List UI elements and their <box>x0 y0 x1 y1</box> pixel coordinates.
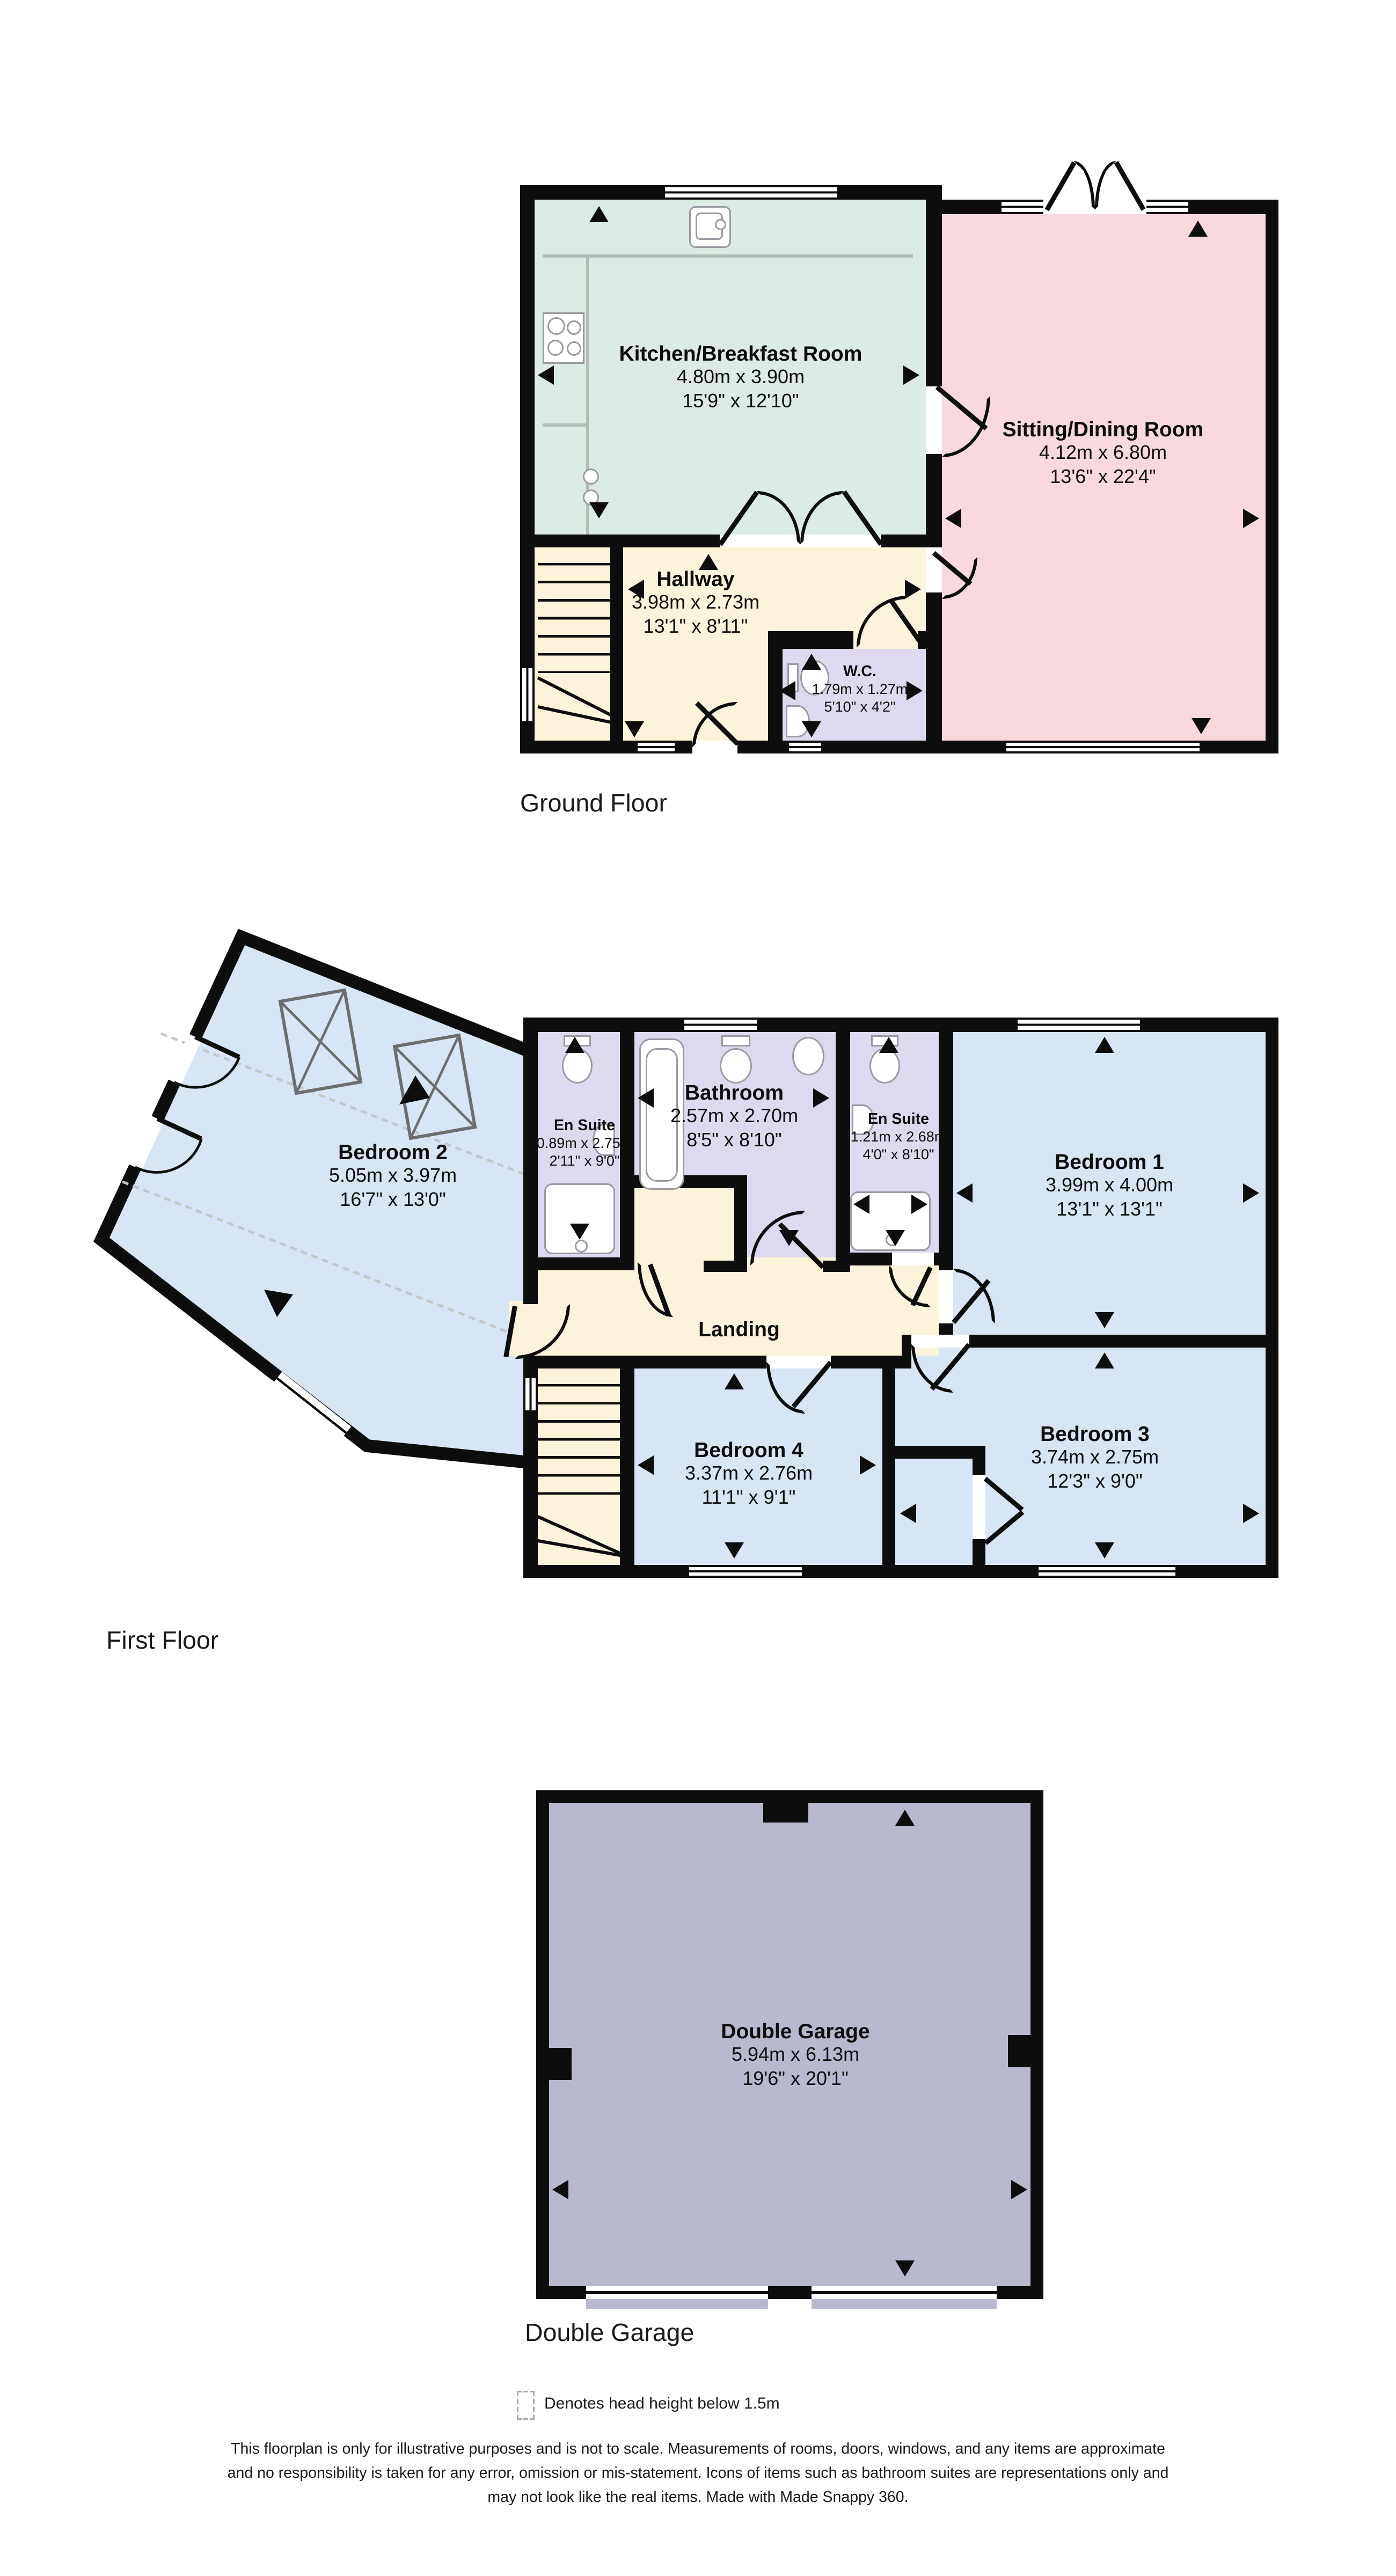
toilet-icon <box>869 1048 900 1084</box>
toilet-icon <box>562 1048 593 1084</box>
wc-imperial: 5'10" x 4'2" <box>799 699 921 716</box>
window <box>1018 1018 1140 1032</box>
bedroom3-metric: 3.74m x 2.75m <box>966 1446 1224 1470</box>
bathroom-imperial: 8'5" x 8'10" <box>622 1129 847 1153</box>
room-label-ensuite2: En Suite 1.21m x 2.68m 4'0" x 8'10" <box>839 1111 958 1164</box>
window <box>638 741 675 753</box>
hob-burner-icon <box>567 320 581 335</box>
measure-arrow-up <box>895 1810 915 1826</box>
wall <box>704 1261 747 1272</box>
window <box>523 1378 538 1410</box>
kitchen-knob-icon <box>583 469 599 485</box>
room-label-bedroom3: Bedroom 3 3.74m x 2.75m 12'3" x 9'0" <box>966 1422 1224 1494</box>
room-label-garage: Double Garage 5.94m x 6.13m 19'6" x 20'1… <box>667 2019 924 2091</box>
floorplan-canvas: Bedroom 2 5.05m x 3.97m 16'7" x 13'0" <box>0 0 1396 2576</box>
measure-arrow-up <box>879 1037 898 1053</box>
room-label-kitchen: Kitchen/Breakfast Room 4.80m x 3.90m 15'… <box>612 341 869 414</box>
room-label-bedroom1: Bedroom 1 3.99m x 4.00m 13'1" x 13'1" <box>981 1150 1238 1222</box>
wall <box>902 1335 911 1368</box>
bedroom3-imperial: 12'3" x 9'0" <box>966 1470 1224 1494</box>
door-opening <box>939 1270 953 1323</box>
staircase-treads <box>538 1368 620 1510</box>
garage-imperial: 19'6" x 20'1" <box>667 2067 924 2091</box>
garage-caption: Double Garage <box>525 2320 694 2349</box>
hob-burner-icon <box>547 317 565 335</box>
wall <box>926 592 942 741</box>
measure-arrow-right <box>1243 1504 1259 1523</box>
kitchen-metric: 4.80m x 3.90m <box>612 365 869 390</box>
wall <box>881 535 942 547</box>
hallway-name: Hallway <box>583 567 808 591</box>
window <box>1002 200 1043 214</box>
hob-burner-icon <box>547 340 564 356</box>
measure-arrow-left <box>945 509 961 528</box>
wall <box>523 1018 1278 1032</box>
bedroom2-name: Bedroom 2 <box>248 1140 538 1164</box>
measure-arrow-down <box>1095 1312 1114 1328</box>
bedroom3-name: Bedroom 3 <box>966 1422 1224 1446</box>
kitchen-cabinet-line <box>543 423 588 426</box>
measure-arrow-up <box>1188 221 1208 237</box>
measure-arrow-down <box>1095 1542 1114 1558</box>
shower-drain-icon <box>575 1240 588 1253</box>
measure-arrow-down <box>625 721 644 737</box>
bedroom2-metric: 5.05m x 3.97m <box>248 1164 538 1188</box>
disclaimer: This floorplan is only for illustrative … <box>0 2438 1396 2510</box>
measure-arrow-right <box>1243 1183 1259 1203</box>
window <box>1006 741 1200 753</box>
hob-burner-icon <box>567 341 581 356</box>
bedroom4-imperial: 11'1" x 9'1" <box>620 1486 878 1510</box>
window <box>1146 200 1188 214</box>
staircase-winders <box>538 1510 620 1565</box>
hallway-imperial: 13'1" x 8'11" <box>583 615 808 639</box>
measure-arrow-up <box>1095 1352 1114 1368</box>
measure-arrow-down <box>570 1224 589 1240</box>
garage-door-line <box>586 2291 768 2294</box>
bedroom2-imperial: 16'7" x 13'0" <box>248 1188 538 1212</box>
kitchen-imperial: 15'9" x 12'10" <box>612 390 869 414</box>
ensuite2-name: En Suite <box>839 1111 958 1129</box>
ensuite1-imperial: 2'11" x 9'0" <box>525 1153 644 1170</box>
measure-arrow-right <box>911 1195 927 1214</box>
measure-arrow-down <box>779 1230 799 1246</box>
sitting-metric: 4.12m x 6.80m <box>974 441 1232 465</box>
measure-arrow-down <box>725 1542 744 1558</box>
window <box>789 741 821 753</box>
measure-arrow-down <box>802 721 821 737</box>
disclaimer-line3: may not look like the real items. Made w… <box>0 2486 1396 2510</box>
ensuite2-imperial: 4'0" x 8'10" <box>839 1146 958 1164</box>
room-label-wc: W.C. 1.79m x 1.27m 5'10" x 4'2" <box>799 663 921 716</box>
room-label-bathroom: Bathroom 2.57m x 2.70m 8'5" x 8'10" <box>622 1080 847 1153</box>
kitchen-name: Kitchen/Breakfast Room <box>612 341 869 365</box>
measure-arrow-right <box>1243 509 1259 528</box>
measure-arrow-left <box>956 1183 973 1203</box>
window <box>684 1018 757 1032</box>
garage-metric: 5.94m x 6.13m <box>667 2043 924 2067</box>
wall-pier <box>763 1803 808 1823</box>
wc-name: W.C. <box>799 663 921 681</box>
measure-arrow-down <box>895 2260 915 2277</box>
window <box>1039 1565 1175 1578</box>
bathroom-metric: 2.57m x 2.70m <box>622 1104 847 1129</box>
wall <box>536 1790 549 2299</box>
wall <box>1266 200 1278 753</box>
wall <box>523 1356 911 1368</box>
measure-arrow-right <box>905 580 921 599</box>
wall <box>823 1261 836 1272</box>
toilet-icon <box>720 1048 752 1084</box>
wall <box>1030 1790 1043 2299</box>
wall-pier <box>1008 2035 1030 2067</box>
sitting-name: Sitting/Dining Room <box>974 417 1232 441</box>
measure-arrow-left <box>900 1504 916 1523</box>
wall <box>882 1368 895 1565</box>
kitchen-tap-icon <box>715 219 726 230</box>
garage-door-slab <box>586 2299 768 2309</box>
measure-arrow-left <box>779 681 795 700</box>
measure-arrow-down <box>1192 718 1211 734</box>
wall <box>734 1188 747 1272</box>
bathroom-name: Bathroom <box>622 1080 847 1104</box>
window <box>520 668 535 721</box>
wall <box>520 535 720 547</box>
room-label-landing: Landing <box>642 1317 836 1341</box>
room-label-bedroom2: Bedroom 2 5.05m x 3.97m 16'7" x 13'0" <box>248 1140 538 1212</box>
wall <box>926 185 942 386</box>
landing-name: Landing <box>642 1317 836 1341</box>
kitchen-counter-line <box>543 254 913 257</box>
wall-pier <box>549 2048 572 2080</box>
wall <box>523 1257 620 1270</box>
bedroom4-name: Bedroom 4 <box>620 1438 878 1462</box>
bedroom1-metric: 3.99m x 4.00m <box>981 1174 1238 1198</box>
garage-name: Double Garage <box>667 2019 924 2043</box>
room-label-hallway: Hallway 3.98m x 2.73m 13'1" x 8'11" <box>583 567 808 639</box>
measure-arrow-up <box>589 206 609 222</box>
garage-door-slab <box>812 2299 997 2309</box>
disclaimer-line1: This floorplan is only for illustrative … <box>0 2438 1396 2462</box>
measure-arrow-up <box>725 1373 744 1389</box>
room-label-bedroom4: Bedroom 4 3.37m x 2.76m 11'1" x 9'1" <box>620 1438 878 1510</box>
measure-arrow-up <box>1095 1037 1114 1053</box>
wall <box>536 1790 1043 1803</box>
measure-arrow-right <box>903 365 919 385</box>
measure-arrow-left <box>853 1195 869 1214</box>
measure-arrow-left <box>538 365 554 385</box>
measure-arrow-up <box>565 1037 584 1053</box>
wall <box>1266 1018 1278 1578</box>
wc-metric: 1.79m x 1.27m <box>799 681 921 699</box>
measure-arrow-down <box>589 502 609 518</box>
sink-icon <box>792 1037 824 1075</box>
window <box>665 185 837 200</box>
head-height-legend-icon <box>517 2391 535 2420</box>
ground-floor-caption: Ground Floor <box>520 791 667 819</box>
garage-door-line <box>812 2291 997 2294</box>
room-label-sitting: Sitting/Dining Room 4.12m x 6.80m 13'6" … <box>974 417 1232 489</box>
hallway-metric: 3.98m x 2.73m <box>583 591 808 615</box>
bedroom1-name: Bedroom 1 <box>981 1150 1238 1174</box>
window <box>689 1565 802 1578</box>
ensuite2-metric: 1.21m x 2.68m <box>839 1129 958 1146</box>
measure-arrow-right <box>1011 2180 1027 2199</box>
legend-text: Denotes head height below 1.5m <box>544 2396 780 2413</box>
disclaimer-line2: and no responsibility is taken for any e… <box>0 2462 1396 2486</box>
measure-arrow-down <box>886 1230 905 1246</box>
toilet-cistern-icon <box>721 1035 750 1046</box>
measure-arrow-left <box>552 2180 568 2199</box>
bedroom4-metric: 3.37m x 2.76m <box>620 1462 878 1486</box>
wall <box>926 454 942 547</box>
first-floor-caption: First Floor <box>106 1628 218 1657</box>
door-opening <box>892 1253 934 1265</box>
bedroom1-imperial: 13'1" x 13'1" <box>981 1198 1238 1222</box>
sitting-imperial: 13'6" x 22'4" <box>974 465 1232 489</box>
